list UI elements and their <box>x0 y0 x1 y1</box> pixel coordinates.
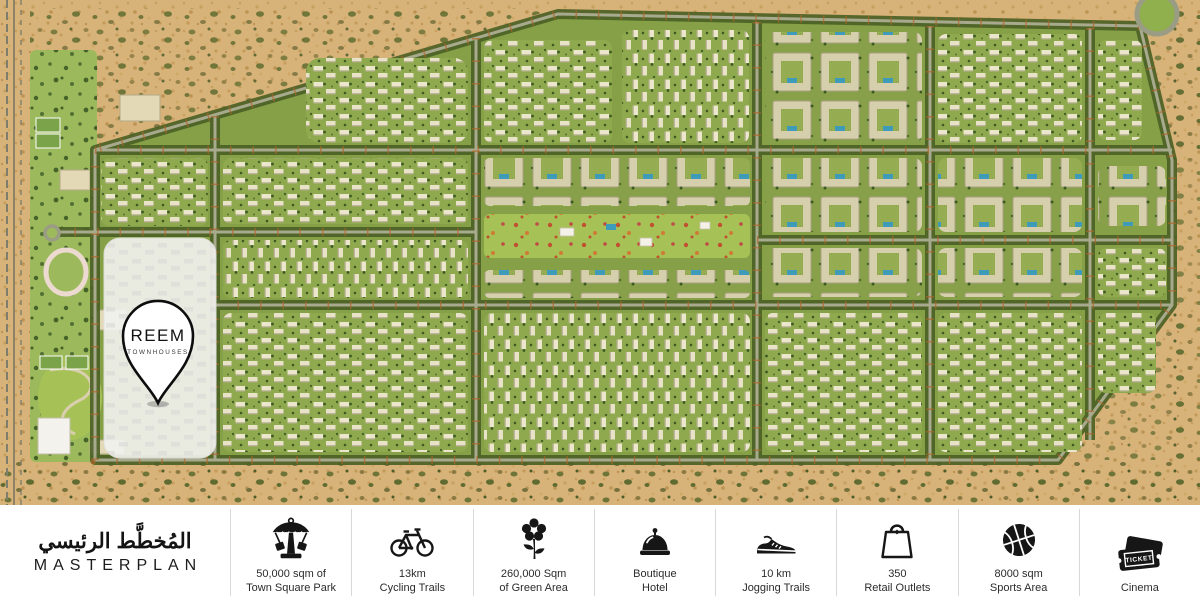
block <box>223 158 468 224</box>
amenity-label: 50,000 sqm of Town Square Park <box>246 568 336 595</box>
amenity-cinema: TICKET Cinema <box>1080 505 1200 600</box>
amenity-label: Cinema <box>1121 582 1159 596</box>
masterplan-page: REEM TOWNHOUSES المُخطَّط الرئيسي MASTER… <box>0 0 1200 600</box>
amenity-sports-area: 8000 sqm Sports Area <box>959 505 1079 600</box>
amenity-line1: 260,000 Sqm <box>499 568 568 582</box>
amenity-line2: Hotel <box>633 582 676 596</box>
amenity-line2: Town Square Park <box>246 582 336 596</box>
amenity-retail-outlets: 350 Retail Outlets <box>837 505 957 600</box>
block <box>101 158 208 226</box>
roundabout-west <box>45 226 59 240</box>
block <box>765 158 922 232</box>
amenity-label: Boutique Hotel <box>633 568 676 595</box>
amenity-line2: Cycling Trails <box>380 582 445 596</box>
amenity-line1: 13km <box>380 568 445 582</box>
amenity-line2: Retail Outlets <box>864 582 930 596</box>
block <box>765 313 922 452</box>
amenity-line2: of Green Area <box>499 582 568 596</box>
amenity-line1: 8000 sqm <box>990 568 1047 582</box>
masterplan-render: REEM TOWNHOUSES <box>0 0 1200 505</box>
block <box>484 313 750 452</box>
amenity-label: 350 Retail Outlets <box>864 568 930 595</box>
amenity-line1: 50,000 sqm of <box>246 568 336 582</box>
block <box>622 30 749 143</box>
running-track <box>46 250 86 294</box>
block <box>765 32 922 143</box>
bicycle-icon <box>387 514 437 566</box>
block <box>1098 166 1166 226</box>
amenity-boutique-hotel: Boutique Hotel <box>595 505 715 600</box>
block <box>484 158 750 206</box>
block <box>938 158 1082 232</box>
amenity-line1: 10 km <box>742 568 810 582</box>
block <box>1098 313 1156 393</box>
central-park <box>484 214 750 258</box>
block <box>306 58 468 143</box>
pin-subtitle: TOWNHOUSES <box>127 349 189 356</box>
roundabout-north <box>1137 0 1177 34</box>
amenity-cycling-trails: 13km Cycling Trails <box>352 505 472 600</box>
amenity-label: 10 km Jogging Trails <box>742 568 810 595</box>
amenity-line1: 350 <box>864 568 930 582</box>
shopping-bag-icon <box>875 514 919 566</box>
amenity-label: 8000 sqm Sports Area <box>990 568 1047 595</box>
block <box>1098 248 1166 297</box>
block <box>938 34 1082 143</box>
amenity-line2: Sports Area <box>990 582 1047 596</box>
masterplan-title-arabic: المُخطَّط الرئيسي <box>38 530 191 554</box>
amenity-green-area: 260,000 Sqm of Green Area <box>474 505 594 600</box>
amenity-line1: Boutique <box>633 568 676 582</box>
masterplan-map: REEM TOWNHOUSES <box>0 0 1200 505</box>
block <box>223 313 468 452</box>
block <box>765 248 922 297</box>
block <box>484 40 612 143</box>
pin-title: REEM <box>130 326 185 345</box>
masterplan-title-block: المُخطَّط الرئيسي MASTERPLAN <box>0 505 230 600</box>
amenity-label: 260,000 Sqm of Green Area <box>499 568 568 595</box>
masterplan-title-english: MASTERPLAN <box>28 557 202 575</box>
amenity-line1: Cinema <box>1121 582 1159 596</box>
block <box>938 313 1082 452</box>
amenity-town-square-park: 50,000 sqm of Town Square Park <box>231 505 351 600</box>
block <box>223 240 468 298</box>
amenity-label: 13km Cycling Trails <box>380 568 445 595</box>
basketball-icon <box>997 514 1041 566</box>
legend-bar: المُخطَّط الرئيسي MASTERPLAN <box>0 505 1200 600</box>
carousel-icon <box>268 514 314 566</box>
block <box>1098 40 1142 140</box>
block <box>938 248 1082 297</box>
bell-icon <box>633 514 677 566</box>
ticket-icon: TICKET <box>1114 528 1166 580</box>
sneaker-icon <box>751 514 801 566</box>
block <box>484 270 750 298</box>
amenity-line2: Jogging Trails <box>742 582 810 596</box>
amenity-jogging-trails: 10 km Jogging Trails <box>716 505 836 600</box>
flower-icon <box>512 514 556 566</box>
